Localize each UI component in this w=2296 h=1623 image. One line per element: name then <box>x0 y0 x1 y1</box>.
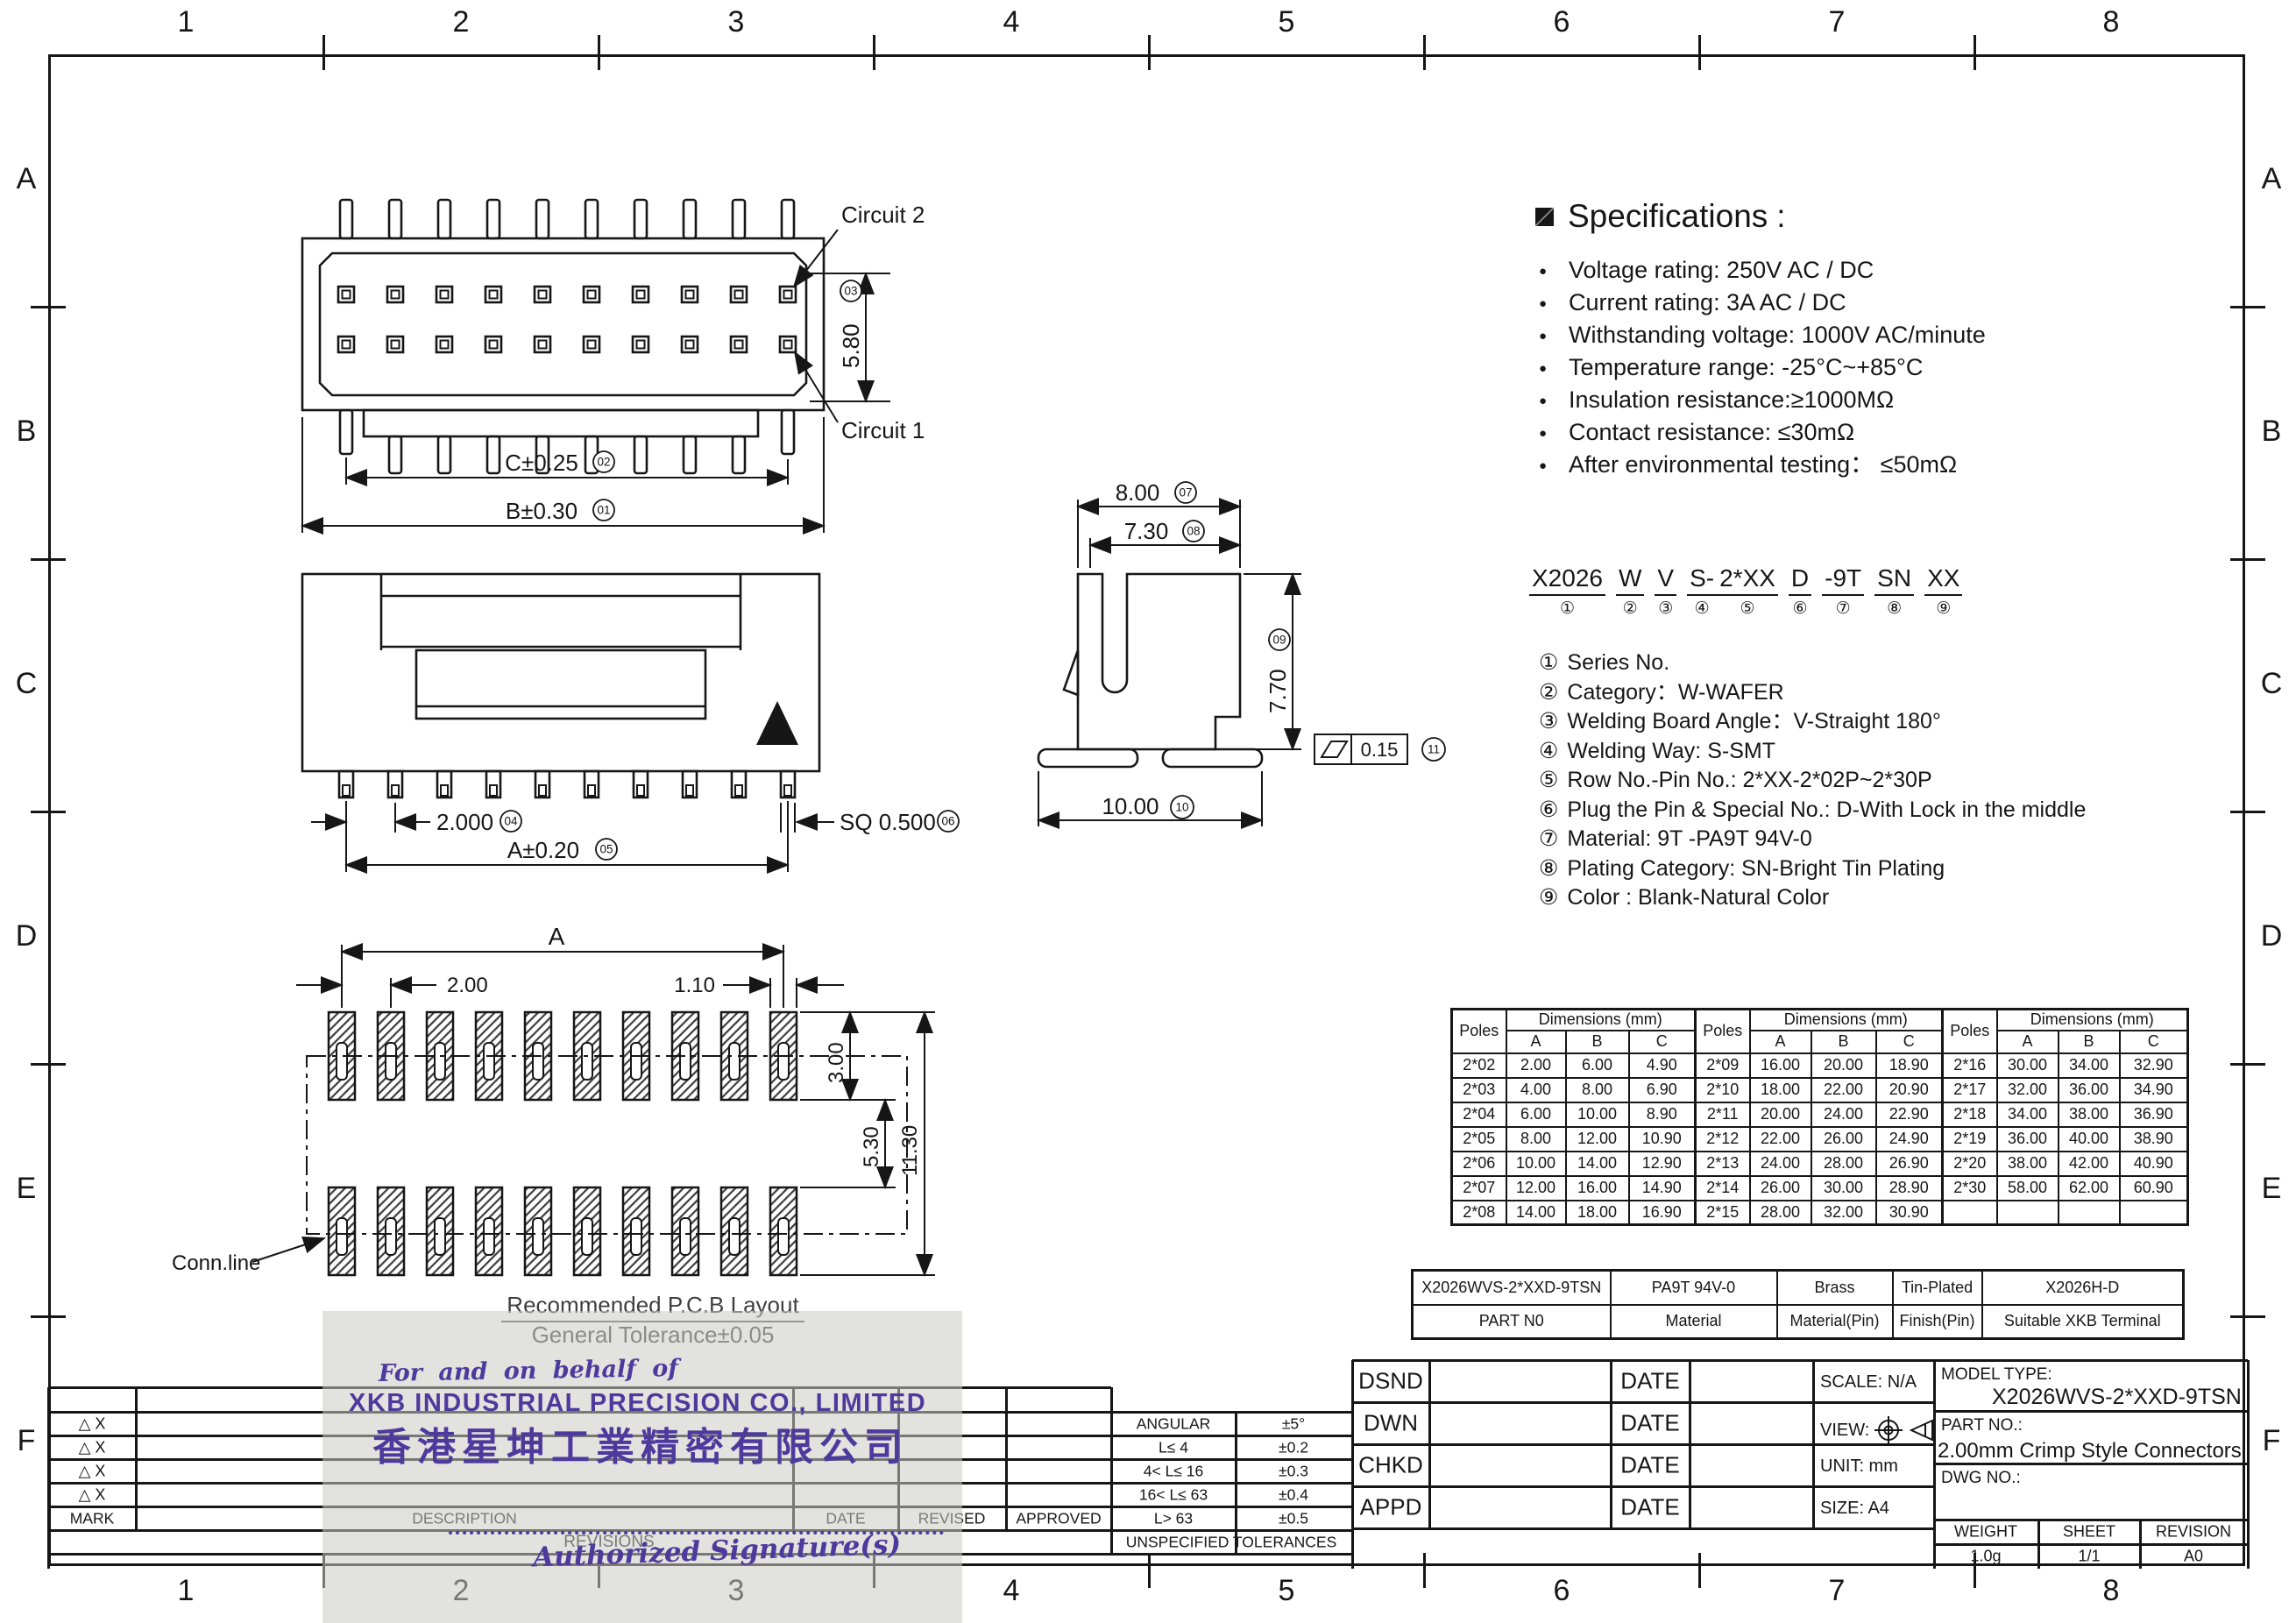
pad-outer <box>633 337 648 352</box>
svg-text:09: 09 <box>1272 634 1286 647</box>
tolerance-range: L> 63 <box>1154 1509 1193 1527</box>
grid-line <box>1934 1463 2248 1465</box>
pad-outer <box>633 287 648 302</box>
legend-number: ⑦ <box>1539 826 1558 851</box>
drawing-sheet: 1122334455667788AABBCCDDEEFF <box>0 0 2296 1623</box>
parts-cell: Finish(Pin) <box>1893 1305 1982 1339</box>
dims-cell: 2*05 <box>1452 1127 1506 1152</box>
dims-cell: 38.00 <box>2059 1102 2120 1127</box>
pad-outer <box>338 287 354 302</box>
bullet-icon: ● <box>1539 352 1569 385</box>
smt-pin-tip <box>441 785 448 796</box>
dimensions-header: Dimensions (mm) <box>1506 1010 1696 1031</box>
pad-slot <box>435 1043 445 1080</box>
grid-line <box>1352 1443 1934 1446</box>
pad-inner <box>392 291 400 299</box>
pad-slot <box>484 1218 494 1255</box>
spec-item: ●Withstanding voltage: 1000V AC/minute <box>1539 319 1986 351</box>
pad-inner <box>686 291 694 299</box>
part-code-segment: W <box>1616 564 1644 596</box>
grid-col-label-bottom: 4 <box>994 1574 1029 1608</box>
top-view-drawing: Circuit 2 Circuit 1 C±0.25 02 B±0.30 01 … <box>280 149 964 561</box>
grid-row-label-left: F <box>9 1424 44 1458</box>
pad-inner <box>637 341 645 349</box>
grid-tick <box>2230 306 2265 308</box>
part-no-value: 2.00mm Crimp Style Connectors <box>1938 1439 2242 1464</box>
smt-pin-tip <box>539 785 546 796</box>
pad-inner <box>735 341 743 349</box>
dims-cell: 18.00 <box>1750 1078 1811 1102</box>
title-block: SCALE: N/A VIEW: UNIT: mm SIZE: A4 MODEL… <box>1352 1360 2248 1569</box>
pad-inner <box>735 291 743 299</box>
svg-text:07: 07 <box>1179 486 1192 500</box>
smt-pin-tip <box>392 785 399 796</box>
part-code-ref-number: ⑧ <box>1887 599 1902 619</box>
part-code-group: XX⑨ <box>1924 564 1962 619</box>
smt-pin-tip <box>490 785 497 796</box>
grid-col-label-bottom: 5 <box>1269 1574 1304 1608</box>
spec-item: ●Voltage rating: 250V AC / DC <box>1539 254 1986 287</box>
svg-text:02: 02 <box>597 456 610 469</box>
parts-cell: X2026WVS-2*XXD-9TSN <box>1413 1271 1611 1305</box>
grid-line <box>47 1387 50 1569</box>
dims-cell: 34.00 <box>1997 1102 2059 1127</box>
dims-cell: 60.90 <box>2120 1176 2188 1201</box>
square-bullet-icon <box>1535 208 1554 226</box>
grid-col-label-bottom: 1 <box>168 1574 203 1608</box>
part-code-ref-number: ④ <box>1695 599 1710 619</box>
pad-inner <box>686 341 694 349</box>
dims-cell: 40.00 <box>2059 1127 2120 1152</box>
side-view-drawing: 8.00 07 7.30 08 7.70 09 10.00 10 0.15 11 <box>999 473 1490 859</box>
pin <box>585 200 598 238</box>
dims-cell: 10.90 <box>1629 1127 1696 1152</box>
dims-cell: 26.90 <box>1876 1152 1943 1176</box>
pin <box>634 200 647 238</box>
spec-item-text: Current rating: 3A AC / DC <box>1569 289 1846 315</box>
grid-line <box>1934 1410 2248 1413</box>
dims-cell: 2*06 <box>1452 1152 1506 1176</box>
legend-line: ③Welding Board Angle：V-Straight 180° <box>1539 707 2086 737</box>
col-header-C: C <box>1876 1031 1943 1053</box>
part-code-group: W② <box>1616 564 1644 619</box>
legend-number: ③ <box>1539 709 1558 734</box>
dims-cell: 2*14 <box>1696 1176 1750 1201</box>
part-code-ref-number: ⑦ <box>1836 599 1851 619</box>
dims-cell: 12.00 <box>1506 1176 1566 1201</box>
dims-cell: 6.00 <box>1566 1053 1629 1078</box>
part-code-group: D⑥ <box>1789 564 1811 619</box>
legend-text: Plating Category: SN-Bright Tin Plating <box>1567 856 1945 881</box>
dims-cell: 28.00 <box>1750 1201 1811 1225</box>
pcb-pads <box>329 1012 797 1275</box>
grid-row-label-right: D <box>2254 919 2289 953</box>
dim-pitch-pcb: 2.00 <box>447 974 488 997</box>
pad-inner <box>588 291 596 299</box>
dimensions-header: Dimensions (mm) <box>1750 1010 1943 1031</box>
pad-slot <box>484 1043 494 1080</box>
dims-cell: 2*02 <box>1452 1053 1506 1078</box>
tolerance-range: 16< L≤ 63 <box>1139 1485 1208 1504</box>
dims-cell: 2*07 <box>1452 1176 1506 1201</box>
poles-header: Poles <box>1452 1010 1506 1053</box>
revisions-header: DATE <box>826 1509 865 1527</box>
pad-slot <box>631 1043 641 1080</box>
dims-cell: 8.00 <box>1566 1078 1629 1102</box>
parts-cell: Brass <box>1777 1271 1893 1305</box>
dims-cell: 30.90 <box>1876 1201 1943 1225</box>
weight-value: 1.0g <box>1970 1548 2001 1566</box>
dims-cell: 36.00 <box>2059 1078 2120 1102</box>
scale-field: SCALE: N/A <box>1820 1372 1917 1393</box>
dims-cell: 4.90 <box>1629 1053 1696 1078</box>
tolerance-value: ±0.4 <box>1279 1485 1308 1504</box>
pad-inner <box>539 291 547 299</box>
pad-inner <box>392 341 400 349</box>
dimensions-header: Dimensions (mm) <box>1997 1010 2188 1031</box>
model-type-value: X2026WVS-2*XXD-9TSN <box>1992 1385 2242 1410</box>
legend-number: ② <box>1539 680 1558 705</box>
part-number-code: X2026①W②V③S-④2*XX⑤D⑥-9T⑦SN⑧XX⑨ <box>1529 564 1962 619</box>
dims-cell <box>2059 1201 2120 1225</box>
dims-cell: 2*19 <box>1943 1127 1997 1152</box>
dims-cell: 22.00 <box>1811 1078 1876 1102</box>
dims-cell: 2*15 <box>1696 1201 1750 1225</box>
weight-label: WEIGHT <box>1954 1523 2017 1541</box>
grid-tick <box>2230 811 2265 813</box>
grid-tick <box>31 306 66 308</box>
part-code-group: V③ <box>1655 564 1676 619</box>
dim-8: 8.00 <box>1116 479 1160 506</box>
pad-slot <box>386 1218 396 1255</box>
grid-col-label-top: 7 <box>1819 5 1854 39</box>
dims-cell: 2*12 <box>1696 1127 1750 1152</box>
col-header-B: B <box>1566 1031 1629 1053</box>
dims-cell: 14.90 <box>1629 1176 1696 1201</box>
specifications-list: ●Voltage rating: 250V AC / DC●Current ra… <box>1539 254 1986 481</box>
dims-cell: 38.90 <box>2120 1127 2188 1152</box>
part-code-ref-number: ⑤ <box>1740 599 1754 619</box>
dims-cell: 26.00 <box>1750 1176 1811 1201</box>
legend-number: ⑤ <box>1539 768 1558 792</box>
grid-col-label-bottom: 7 <box>1819 1574 1854 1608</box>
dim-a-pcb: A <box>549 923 565 950</box>
grid-col-label-top: 8 <box>2094 5 2129 39</box>
revisions-header: DESCRIPTION <box>412 1509 517 1527</box>
pad-inner <box>784 291 792 299</box>
dims-table-row: 2*0814.0018.0016.902*1528.0032.0030.90 <box>1452 1201 2188 1225</box>
sheet-value: 1/1 <box>2078 1548 2100 1566</box>
grid-row-label-left: D <box>9 919 44 953</box>
dims-cell: 2*10 <box>1696 1078 1750 1102</box>
part-code-segment: V <box>1655 564 1676 596</box>
stamp-line1: For and on behalf of <box>379 1355 678 1387</box>
dims-cell: 6.00 <box>1506 1102 1566 1127</box>
pad-inner <box>490 291 498 299</box>
pin <box>487 200 500 238</box>
parts-cell: Suitable XKB Terminal <box>1982 1305 2184 1339</box>
titleblock-role-label: APPD <box>1360 1494 1422 1521</box>
dim-pad-width: 1.10 <box>674 974 715 997</box>
dims-table-row: 2*046.0010.008.902*1120.0024.0022.902*18… <box>1452 1102 2188 1127</box>
dims-table-row: 2*034.008.006.902*1018.0022.0020.902*173… <box>1452 1078 2188 1102</box>
parts-cell: Material(Pin) <box>1777 1305 1893 1339</box>
pad-outer <box>731 337 747 352</box>
pad-slot <box>680 1043 691 1080</box>
dims-cell: 2*08 <box>1452 1201 1506 1225</box>
titleblock-date-label: DATE <box>1620 1494 1679 1521</box>
dims-cell <box>1943 1201 1997 1225</box>
tolerance-range: ANGULAR <box>1137 1414 1211 1433</box>
pin <box>684 200 696 238</box>
conn-line-label: Conn.line <box>172 1251 260 1275</box>
pad-outer <box>682 287 698 302</box>
dims-cell: 36.00 <box>1997 1127 2059 1152</box>
spec-item-text: Withstanding voltage: 1000V AC/minute <box>1569 322 1986 348</box>
pad-inner <box>343 291 351 299</box>
dims-cell: 32.90 <box>2120 1053 2188 1078</box>
dim-row-gap: 5.30 <box>860 1126 883 1167</box>
parts-cell: Tin-Plated <box>1893 1271 1982 1305</box>
dims-cell: 2*20 <box>1943 1152 1997 1176</box>
col-header-C: C <box>2120 1031 2188 1053</box>
dim-7-30: 7.30 <box>1124 518 1169 544</box>
dims-cell: 18.90 <box>1876 1053 1943 1078</box>
dims-cell: 2*09 <box>1696 1053 1750 1078</box>
grid-col-label-top: 4 <box>994 5 1029 39</box>
grid-row-label-right: A <box>2254 162 2289 196</box>
poles-header: Poles <box>1696 1010 1750 1053</box>
legend-line: ④Welding Way: S-SMT <box>1539 737 2086 767</box>
svg-text:08: 08 <box>1187 525 1200 538</box>
titleblock-role-label: DSND <box>1358 1368 1423 1395</box>
poles-header: Poles <box>1943 1010 1997 1053</box>
dims-cell: 20.90 <box>1876 1078 1943 1102</box>
pin <box>733 200 745 238</box>
grid-col-label-bottom: 6 <box>1544 1574 1579 1608</box>
spec-item-text: After environmental testing： ≤50mΩ <box>1569 451 1957 478</box>
legend-line: ⑤Row No.-Pin No.: 2*XX-2*02P~2*30P <box>1539 766 2086 796</box>
pad-inner <box>588 341 596 349</box>
pad-inner <box>441 341 449 349</box>
tolerances-footer: UNSPECIFIED TOLERANCES <box>1126 1533 1337 1551</box>
dims-cell: 6.90 <box>1629 1078 1696 1102</box>
col-header-B: B <box>1811 1031 1876 1053</box>
dims-cell <box>1997 1201 2059 1225</box>
dims-cell: 12.90 <box>1629 1152 1696 1176</box>
grid-tick <box>31 1315 66 1318</box>
bullet-icon: ● <box>1539 287 1569 320</box>
grid-col-label-top: 3 <box>719 5 754 39</box>
grid-row-label-left: A <box>9 162 44 196</box>
pin <box>340 410 352 454</box>
col-header-B: B <box>2059 1031 2120 1053</box>
size-field: SIZE: A4 <box>1820 1499 1889 1519</box>
pad-slot <box>778 1218 789 1255</box>
pad-inner <box>539 341 547 349</box>
col-header-C: C <box>1629 1031 1696 1053</box>
part-code-ref-number: ⑨ <box>1936 599 1951 619</box>
dims-cell: 24.00 <box>1750 1152 1811 1176</box>
pin <box>389 200 401 238</box>
grid-line <box>1351 1360 1354 1569</box>
dim-pad-length: 3.00 <box>825 1042 848 1083</box>
dims-cell <box>2120 1201 2188 1225</box>
grid-line <box>1352 1527 1934 1530</box>
dims-cell: 20.00 <box>1750 1102 1811 1127</box>
dims-cell: 30.00 <box>1811 1176 1876 1201</box>
bullet-icon: ● <box>1539 385 1569 417</box>
parts-cell: Material <box>1611 1305 1777 1339</box>
pad-outer <box>436 337 452 352</box>
dims-cell: 2*04 <box>1452 1102 1506 1127</box>
pad-slot <box>337 1218 347 1255</box>
titleblock-role-label: CHKD <box>1358 1452 1423 1479</box>
dims-cell: 32.00 <box>1811 1201 1876 1225</box>
revision-value: A0 <box>2184 1548 2203 1566</box>
smt-pin-tip <box>686 785 693 796</box>
conn-line-leader <box>252 1238 324 1262</box>
parts-cell: X2026H-D <box>1982 1271 2184 1305</box>
dims-cell: 22.00 <box>1750 1127 1811 1152</box>
revision-mark: △ X <box>79 1438 106 1456</box>
dims-cell: 24.00 <box>1811 1102 1876 1127</box>
pad-outer <box>584 337 599 352</box>
dim-total-height: 11.30 <box>898 1125 922 1176</box>
pad-outer <box>780 337 796 352</box>
spec-item: ●After environmental testing： ≤50mΩ <box>1539 449 1986 481</box>
grid-col-label-top: 2 <box>443 5 478 39</box>
dim-10: 10.00 <box>1102 793 1159 819</box>
wafer-band <box>416 650 705 719</box>
pin <box>389 436 401 473</box>
tolerance-value: ±5° <box>1282 1414 1305 1433</box>
part-code-segment: S- <box>1687 564 1717 596</box>
pad-slot <box>435 1218 445 1255</box>
dims-cell: 2*13 <box>1696 1152 1750 1176</box>
revision-mark: △ X <box>79 1485 106 1504</box>
unit-field: UNIT: mm <box>1820 1456 1898 1477</box>
sheet-label: SHEET <box>2063 1523 2115 1541</box>
pad-slot <box>680 1218 691 1255</box>
tolerance-value: ±0.2 <box>1279 1438 1308 1456</box>
pad-outer <box>731 287 747 302</box>
dims-cell: 2*03 <box>1452 1078 1506 1102</box>
dim-a: A±0.20 <box>507 837 579 863</box>
dims-cell: 12.00 <box>1566 1127 1629 1152</box>
part-number-legend: ①Series No.②Category：W-WAFER③Welding Boa… <box>1539 648 2086 913</box>
legend-text: Category：W-WAFER <box>1567 680 1783 705</box>
smt-pin-tip <box>588 785 595 796</box>
pad-slot <box>533 1218 543 1255</box>
pin <box>684 436 696 473</box>
part-code-group: SN⑧ <box>1874 564 1914 619</box>
bullet-icon: ● <box>1539 320 1569 352</box>
dims-cell: 20.00 <box>1811 1053 1876 1078</box>
grid-line <box>1352 1401 1934 1404</box>
part-code-ref-number: ① <box>1560 599 1575 619</box>
legend-text: Material: 9T -PA9T 94V-0 <box>1567 826 1811 851</box>
part-code-group: -9T⑦ <box>1822 564 1864 619</box>
pin1-triangle-marker <box>756 701 798 745</box>
dims-cell: 8.00 <box>1506 1127 1566 1152</box>
dims-cell: 10.00 <box>1566 1102 1629 1127</box>
spec-item: ●Contact resistance: ≤30mΩ <box>1539 416 1986 449</box>
pad-slot <box>778 1043 789 1080</box>
titleblock-date-label: DATE <box>1620 1452 1679 1479</box>
grid-row-label-left: E <box>9 1172 44 1206</box>
spec-item: ●Current rating: 3A AC / DC <box>1539 287 1986 319</box>
pad-outer <box>387 337 403 352</box>
part-code-group: S-④ <box>1687 564 1717 619</box>
part-code-segment: -9T <box>1822 564 1864 596</box>
pin <box>634 436 647 473</box>
legend-text: Series No. <box>1567 650 1669 675</box>
grid-tick <box>2230 558 2265 561</box>
grid-col-label-top: 6 <box>1544 5 1579 39</box>
dims-cell: 8.90 <box>1629 1102 1696 1127</box>
dim-7-70: 7.70 <box>1265 669 1291 713</box>
dims-cell: 14.00 <box>1566 1152 1629 1176</box>
part-code-group: X2026① <box>1529 564 1605 619</box>
dims-cell: 30.00 <box>1997 1053 2059 1078</box>
legend-text: Row No.-Pin No.: 2*XX-2*02P~2*30P <box>1567 768 1931 792</box>
grid-col-label-bottom: 2 <box>443 1574 478 1608</box>
spec-item-text: Voltage rating: 250V AC / DC <box>1569 257 1874 283</box>
grid-tick <box>1148 35 1151 70</box>
dims-cell: 18.00 <box>1566 1201 1629 1225</box>
left-foot-pad <box>1038 749 1137 767</box>
smt-pin-tip <box>343 785 350 796</box>
legend-number: ⑥ <box>1539 797 1558 822</box>
dims-cell: 2*11 <box>1696 1102 1750 1127</box>
spec-item-text: Insulation resistance:≥1000MΩ <box>1569 386 1894 413</box>
revisions-header: REVISED <box>918 1509 986 1527</box>
grid-line <box>1352 1485 1934 1488</box>
grid-tick <box>31 558 66 561</box>
legend-text: Welding Way: S-SMT <box>1567 739 1775 763</box>
part-code-segment: XX <box>1924 564 1962 596</box>
pad-outer <box>485 337 501 352</box>
tolerance-range: L≤ 4 <box>1159 1438 1188 1456</box>
model-type-label: MODEL TYPE: <box>1941 1365 2052 1385</box>
pin <box>536 200 549 238</box>
pcb-layout-drawing: A 2.00 1.10 3.00 5.30 11.30 Conn.line <box>158 911 981 1288</box>
dims-cell: 16.00 <box>1750 1053 1811 1078</box>
pad-outer <box>338 337 354 352</box>
dim-b: B±0.30 <box>506 498 578 524</box>
parts-cell: PART N0 <box>1413 1305 1611 1339</box>
parts-labels-row: PART N0MaterialMaterial(Pin)Finish(Pin)S… <box>1413 1305 2184 1339</box>
pad-outer <box>535 337 550 352</box>
pcb-tolerance-caption: General Tolerance±0.05 <box>377 1322 929 1349</box>
part-code-segment: D <box>1789 564 1811 596</box>
dims-cell: 10.00 <box>1506 1152 1566 1176</box>
revisions-header: MARK <box>70 1509 115 1527</box>
grid-col-label-top: 5 <box>1269 5 1304 39</box>
revision-label: REVISION <box>2156 1523 2231 1541</box>
legend-text: Welding Board Angle：V-Straight 180° <box>1567 709 1940 734</box>
dims-cell: 40.90 <box>2120 1152 2188 1176</box>
dims-table-row: 2*022.006.004.902*0916.0020.0018.902*163… <box>1452 1053 2188 1078</box>
dims-cell: 4.00 <box>1506 1078 1566 1102</box>
tolerance-value: ±0.5 <box>1279 1509 1308 1527</box>
svg-text:10: 10 <box>1175 801 1188 814</box>
pad-slot <box>582 1043 592 1080</box>
dims-cell: 2.00 <box>1506 1053 1566 1078</box>
dims-cell: 42.00 <box>2059 1152 2120 1176</box>
dims-cell: 34.90 <box>2120 1078 2188 1102</box>
